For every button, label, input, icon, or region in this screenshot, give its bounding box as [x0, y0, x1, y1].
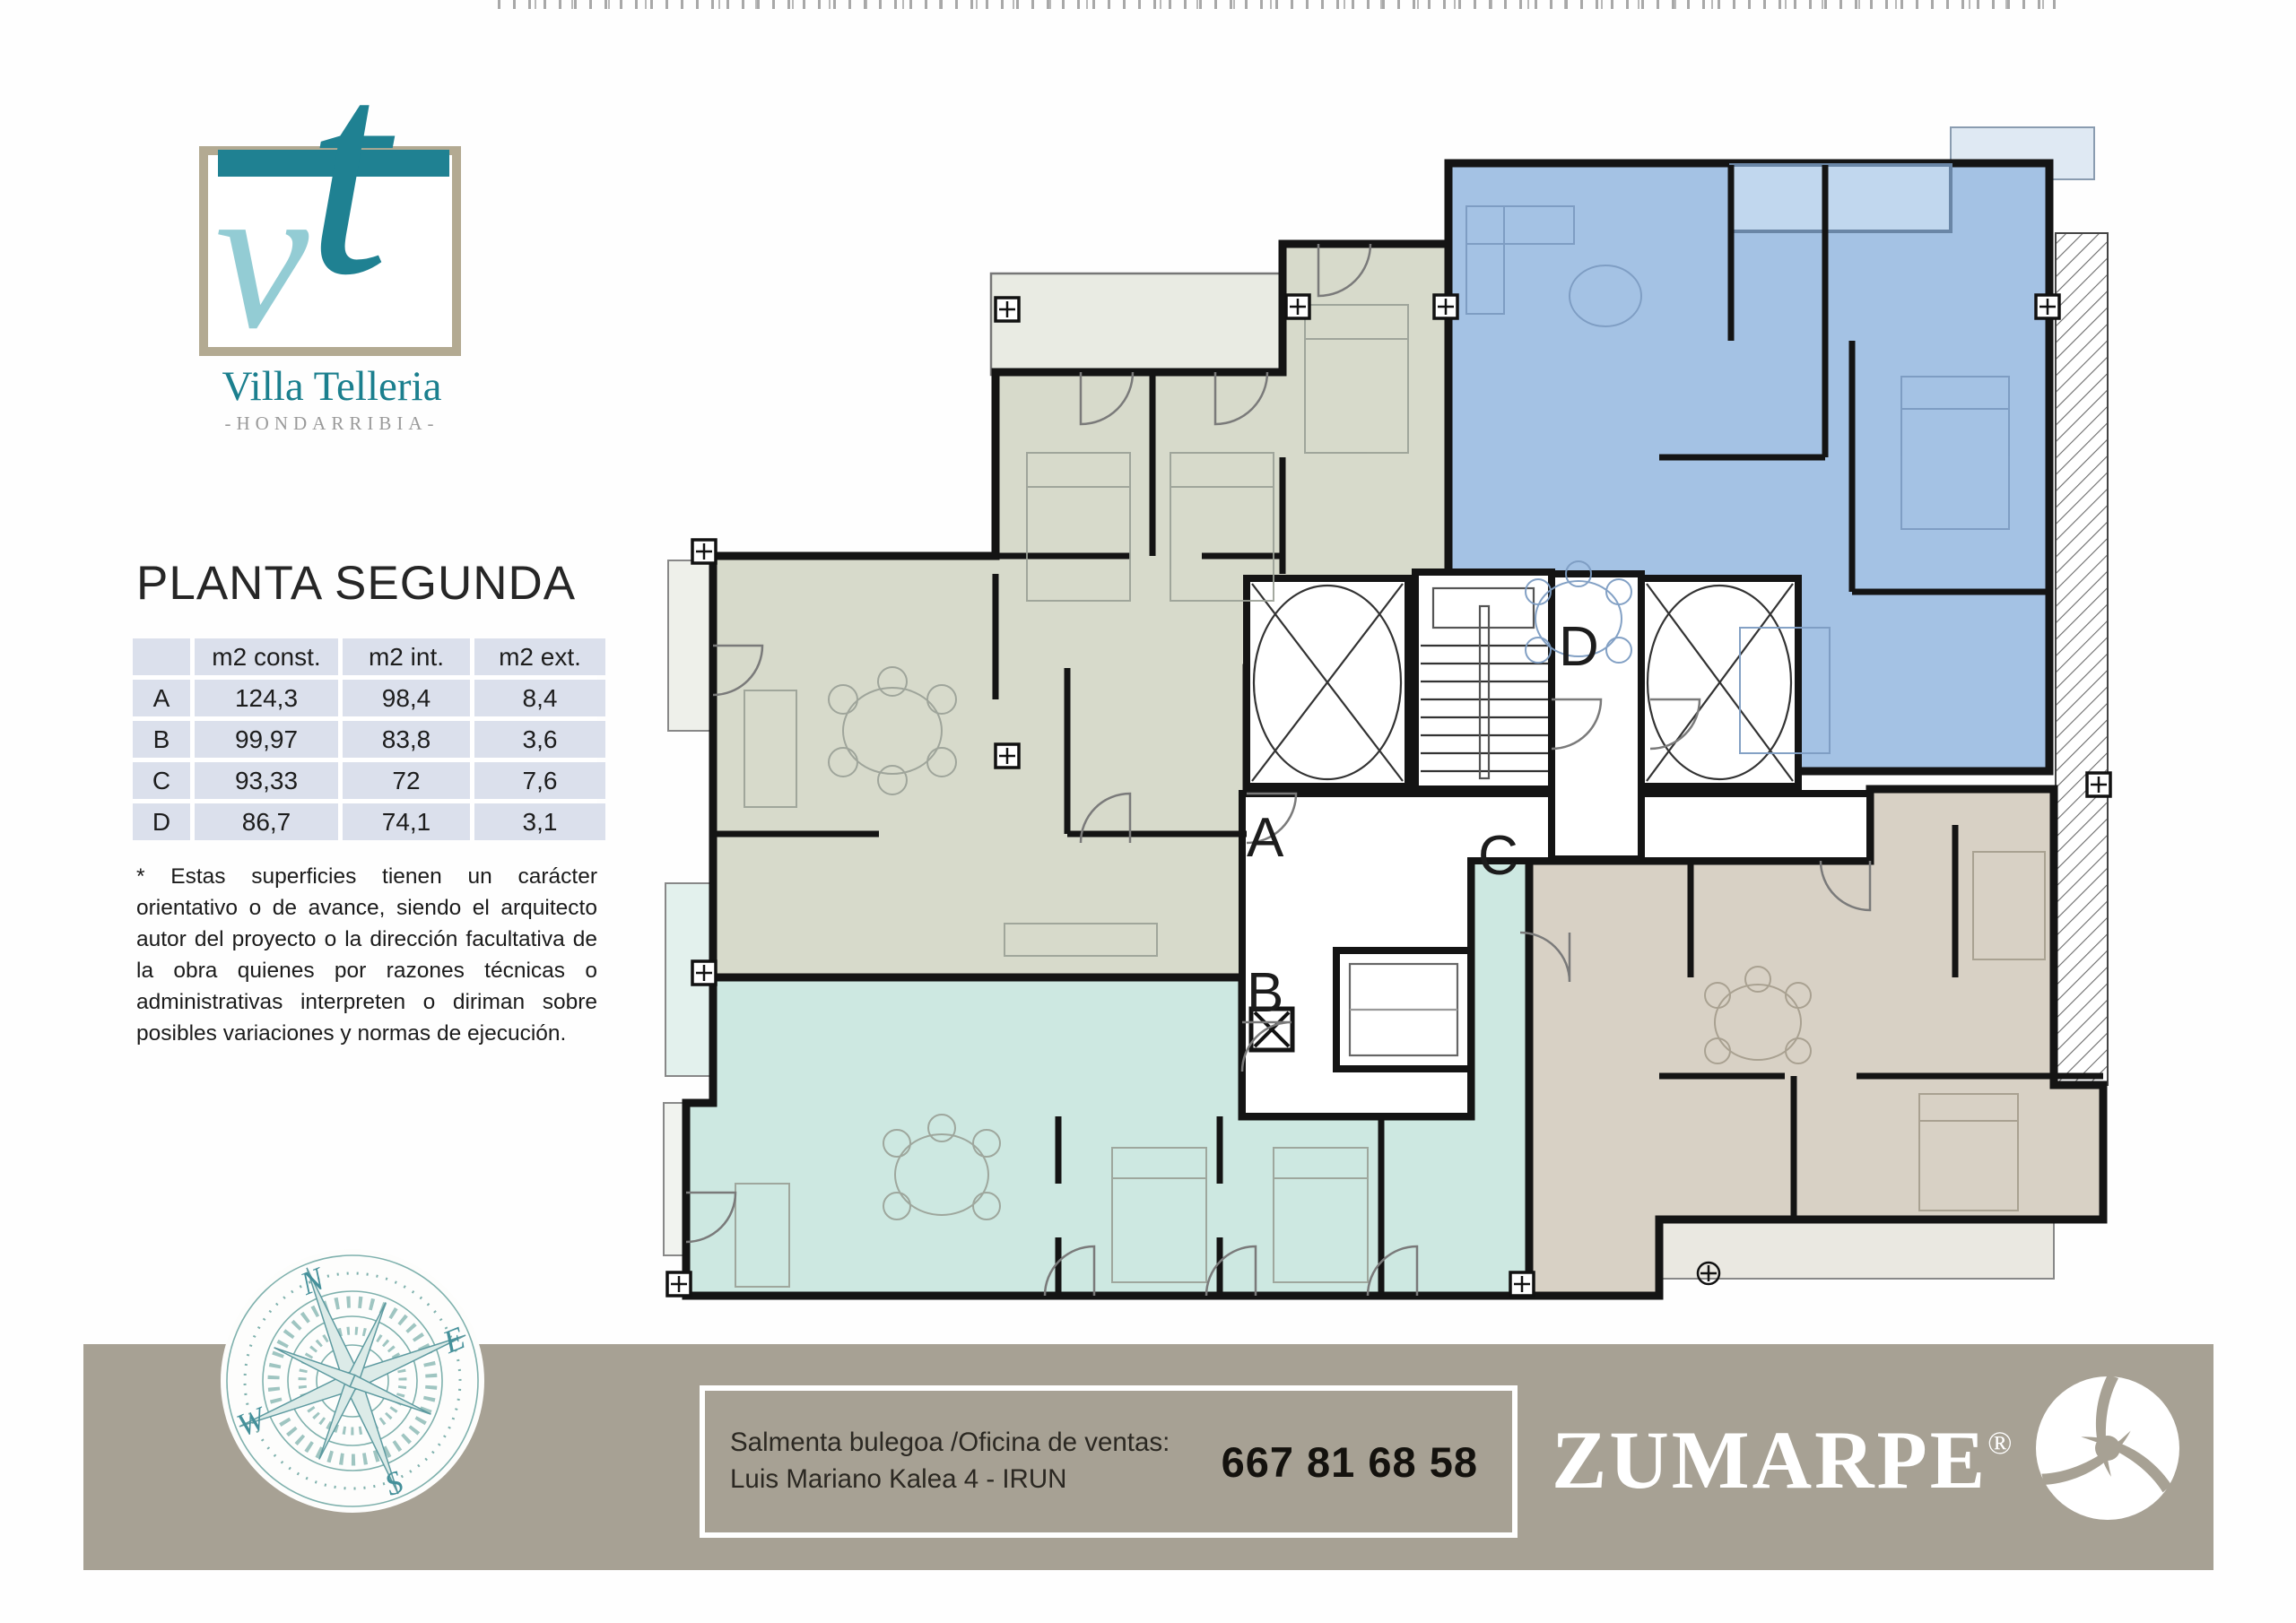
label-unit-b: B — [1247, 962, 1283, 1024]
floor-plan: A B C D — [628, 72, 2117, 1327]
table-header-int: m2 int. — [343, 638, 470, 675]
project-name: Villa Telleria — [108, 362, 556, 411]
row-b-const: 99,97 — [195, 721, 338, 758]
registered-mark: ® — [1987, 1425, 2012, 1461]
row-d-ext: 3,1 — [474, 803, 605, 840]
logo-letter-t: t — [307, 25, 389, 321]
row-b-label: B — [133, 721, 190, 758]
unit-c-tan — [1529, 789, 2103, 1296]
cropped-top-ticks — [498, 0, 2067, 9]
row-c-label: C — [133, 762, 190, 799]
unit-d-balcony — [1731, 165, 1951, 231]
row-a-ext: 8,4 — [474, 680, 605, 716]
row-d-label: D — [133, 803, 190, 840]
compass-rose: N E S W — [218, 1246, 487, 1515]
brand-logo-icon — [2029, 1369, 2187, 1527]
project-location: -HONDARRIBIA- — [108, 412, 556, 435]
table-header-blank — [133, 638, 190, 675]
row-a-int: 98,4 — [343, 680, 470, 716]
row-c-int: 72 — [343, 762, 470, 799]
brochure-page: v t Villa Telleria -HONDARRIBIA- PLANTA … — [0, 0, 2296, 1623]
row-d-int: 74,1 — [343, 803, 470, 840]
sales-office-line1: Salmenta bulegoa /Oficina de ventas: — [730, 1425, 1170, 1462]
brand-wordmark: ZUMARPE — [1552, 1414, 1987, 1506]
row-c-const: 93,33 — [195, 762, 338, 799]
sales-office-text: Salmenta bulegoa /Oficina de ventas: Lui… — [730, 1425, 1170, 1497]
developer-brand: ZUMARPE® — [1552, 1419, 2012, 1501]
disclaimer-text: * Estas superficies tienen un carácter o… — [136, 861, 597, 1049]
page-title: PLANTA SEGUNDA — [136, 556, 576, 611]
areas-table: m2 const. m2 int. m2 ext. A 124,3 98,4 8… — [133, 638, 597, 840]
row-d-const: 86,7 — [195, 803, 338, 840]
sales-office-line2: Luis Mariano Kalea 4 - IRUN — [730, 1462, 1170, 1498]
row-a-const: 124,3 — [195, 680, 338, 716]
sales-phone-number: 667 81 68 58 — [1222, 1437, 1478, 1487]
label-unit-d: D — [1559, 616, 1599, 678]
table-header-const: m2 const. — [195, 638, 338, 675]
sales-office-box: Salmenta bulegoa /Oficina de ventas: Lui… — [700, 1385, 1518, 1538]
row-c-ext: 7,6 — [474, 762, 605, 799]
plus-circle-marker — [1698, 1263, 1719, 1284]
row-b-ext: 3,6 — [474, 721, 605, 758]
row-a-label: A — [133, 680, 190, 716]
label-unit-c: C — [1478, 825, 1518, 887]
table-header-ext: m2 ext. — [474, 638, 605, 675]
logo-letter-v: v — [215, 151, 309, 361]
neighbour-hatch — [2056, 233, 2108, 1085]
row-b-int: 83,8 — [343, 721, 470, 758]
label-unit-a: A — [1247, 807, 1284, 869]
